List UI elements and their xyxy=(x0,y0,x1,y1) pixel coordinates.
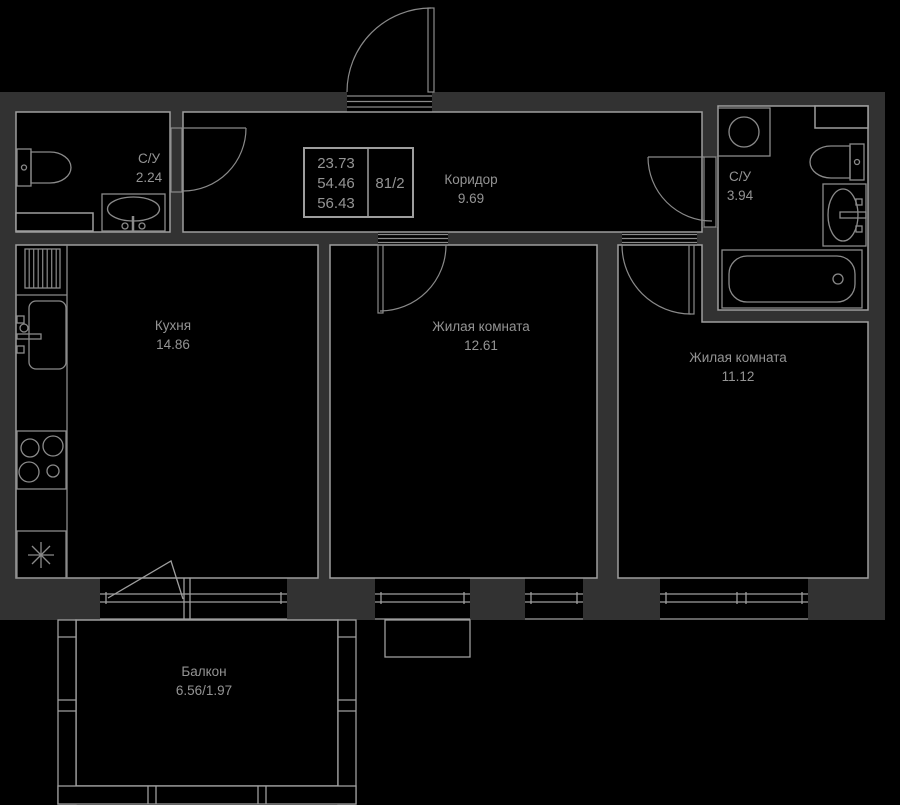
wall-bath2-lower xyxy=(702,227,718,322)
rooms xyxy=(16,106,868,786)
window-living1-b xyxy=(525,592,583,619)
wall-top-a xyxy=(16,92,347,112)
wall-bottom-seg5 xyxy=(808,578,885,620)
wall-bottom-seg1 xyxy=(0,578,100,620)
window-living2 xyxy=(660,592,808,619)
wall-kitchen-room1 xyxy=(318,232,330,578)
wall-left-exterior xyxy=(0,92,16,620)
stamp-value: 54.46 xyxy=(317,175,355,192)
floor-plan: 23.73 54.46 56.43 81/2 С/У 2.24 Коридор … xyxy=(0,0,900,805)
room-name: Кухня xyxy=(155,318,191,333)
glazing-bottom xyxy=(58,786,356,804)
duct-niche-1 xyxy=(16,213,93,231)
room-living-1-floor xyxy=(330,245,597,578)
wall-room1-room2 xyxy=(597,245,618,578)
door-frame xyxy=(704,157,716,227)
wall-bottom-seg3 xyxy=(470,578,525,620)
stamp-value: 56.43 xyxy=(317,195,355,212)
room-name: Жилая комната xyxy=(432,319,530,334)
stamp-number: 81/2 xyxy=(375,175,404,192)
wall-right-exterior xyxy=(868,92,885,620)
glazing-right xyxy=(338,620,356,804)
door-leaf xyxy=(428,8,434,92)
room-name: С/У xyxy=(729,169,752,184)
window-exterior-box xyxy=(385,620,470,657)
wall-bath2-bottom xyxy=(702,310,885,322)
wall-top-c xyxy=(718,92,885,106)
room-area: 3.94 xyxy=(727,188,754,203)
wall-top-b xyxy=(432,92,718,112)
wall-bottom-seg2 xyxy=(287,578,375,620)
window-living1-a xyxy=(375,592,470,657)
wall-bottom-seg4 xyxy=(583,578,660,620)
room-area: 9.69 xyxy=(458,191,484,206)
stamp-value: 23.73 xyxy=(317,155,355,172)
room-bathroom-2-floor xyxy=(718,106,868,310)
wall-bath2-upper xyxy=(702,92,718,157)
room-area: 12.61 xyxy=(464,338,498,353)
wall-band-seg2 xyxy=(448,232,622,245)
door-arc xyxy=(347,8,431,92)
room-corridor-floor xyxy=(183,112,702,232)
room-name: Жилая комната xyxy=(689,350,787,365)
room-area: 2.24 xyxy=(136,170,163,185)
duct-niche-2 xyxy=(815,106,868,128)
room-balcony-floor xyxy=(76,620,338,786)
room-name: Балкон xyxy=(181,664,226,679)
room-name: Коридор xyxy=(444,172,497,187)
room-name: С/У xyxy=(138,151,161,166)
wall-bath1-corridor xyxy=(170,112,183,232)
room-area: 11.12 xyxy=(722,369,755,384)
radiator xyxy=(25,249,60,288)
room-area: 14.86 xyxy=(156,337,190,352)
glazing-left xyxy=(58,620,76,804)
room-area: 6.56/1.97 xyxy=(176,683,232,698)
entrance-door xyxy=(347,8,434,107)
